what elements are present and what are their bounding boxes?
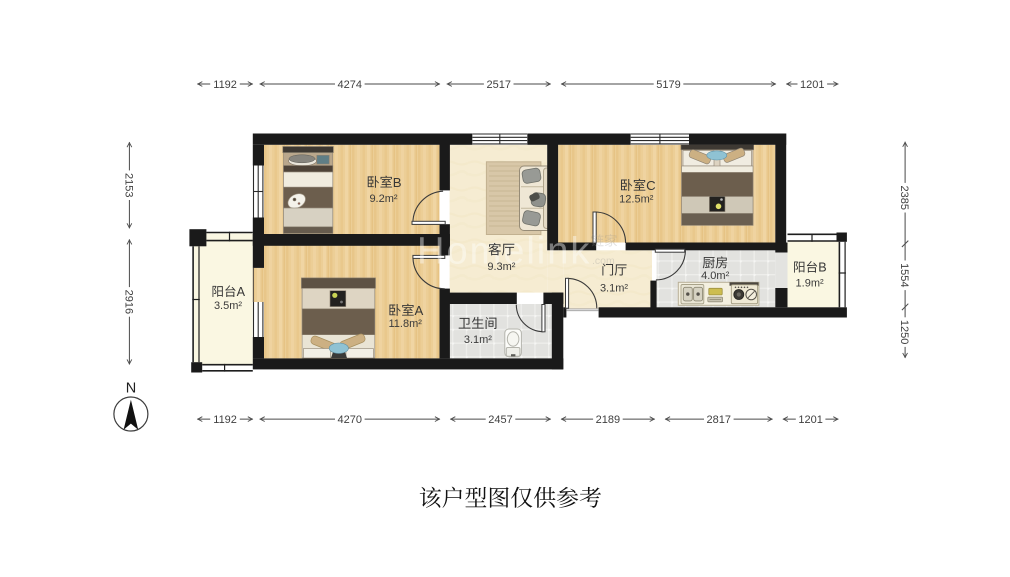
svg-text:3.1m²: 3.1m² bbox=[464, 334, 492, 346]
svg-text:C: C bbox=[646, 178, 656, 193]
svg-text:2517: 2517 bbox=[487, 79, 511, 91]
svg-text:5179: 5179 bbox=[656, 79, 680, 91]
svg-text:.com: .com bbox=[592, 255, 615, 267]
svg-text:3.5m²: 3.5m² bbox=[214, 300, 242, 312]
svg-text:9.3m²: 9.3m² bbox=[487, 261, 515, 273]
svg-text:11.8m²: 11.8m² bbox=[388, 318, 422, 330]
svg-text:1554: 1554 bbox=[898, 263, 910, 287]
svg-text:2189: 2189 bbox=[596, 414, 620, 426]
svg-text:12.5m²: 12.5m² bbox=[619, 194, 654, 206]
svg-text:1201: 1201 bbox=[800, 79, 824, 91]
svg-text:1192: 1192 bbox=[213, 414, 237, 426]
svg-text:A: A bbox=[237, 285, 246, 299]
svg-text:B: B bbox=[393, 175, 402, 190]
svg-text:9.2m²: 9.2m² bbox=[369, 193, 397, 205]
svg-text:B: B bbox=[818, 261, 826, 275]
svg-text:1192: 1192 bbox=[213, 79, 237, 91]
svg-text:1201: 1201 bbox=[798, 414, 822, 426]
svg-text:2153: 2153 bbox=[122, 173, 134, 197]
svg-text:4274: 4274 bbox=[338, 79, 362, 91]
svg-text:N: N bbox=[126, 381, 136, 397]
svg-text:2916: 2916 bbox=[122, 290, 134, 314]
svg-text:3.1m²: 3.1m² bbox=[600, 282, 628, 294]
svg-text:4.0m²: 4.0m² bbox=[701, 270, 729, 282]
svg-text:1250: 1250 bbox=[898, 320, 910, 344]
svg-text:A: A bbox=[415, 303, 424, 318]
svg-text:2457: 2457 bbox=[488, 414, 512, 426]
svg-text:4270: 4270 bbox=[338, 414, 362, 426]
svg-text:1.9m²: 1.9m² bbox=[796, 278, 824, 290]
svg-text:2817: 2817 bbox=[707, 414, 731, 426]
svg-text:2385: 2385 bbox=[898, 185, 910, 209]
